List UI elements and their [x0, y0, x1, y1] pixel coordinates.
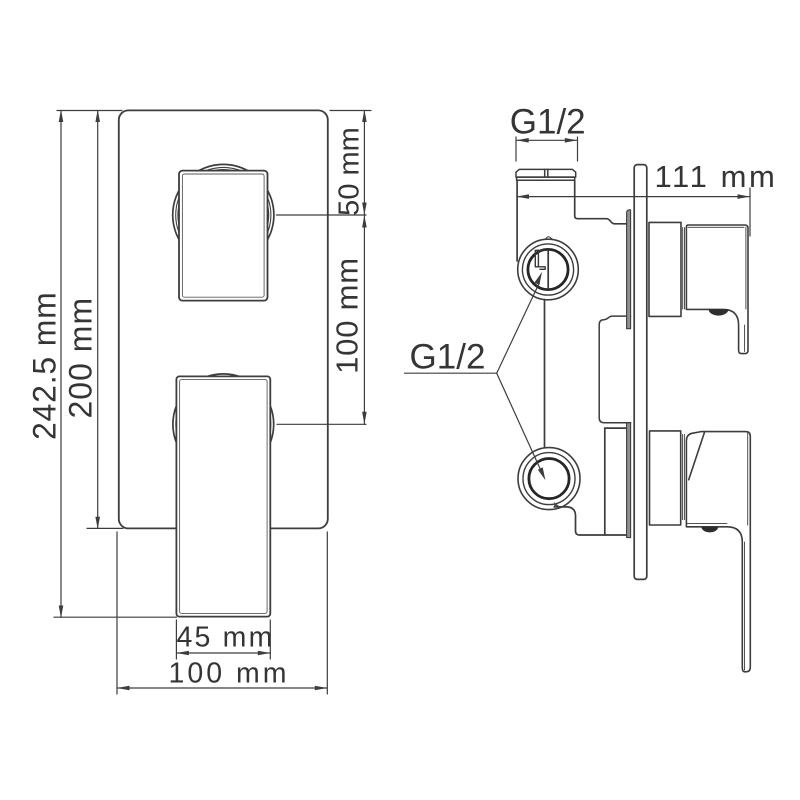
svg-text:G1/2: G1/2: [510, 103, 586, 142]
svg-text:200 mm: 200 mm: [63, 297, 99, 419]
svg-text:G1/2: G1/2: [410, 338, 486, 377]
svg-text:45 mm: 45 mm: [176, 622, 274, 654]
svg-text:100 mm: 100 mm: [330, 257, 365, 374]
svg-text:100 mm: 100 mm: [169, 658, 290, 690]
svg-text:242.5 mm: 242.5 mm: [27, 291, 63, 440]
svg-text:50 mm: 50 mm: [334, 127, 366, 216]
svg-text:111 mm: 111 mm: [655, 159, 778, 194]
